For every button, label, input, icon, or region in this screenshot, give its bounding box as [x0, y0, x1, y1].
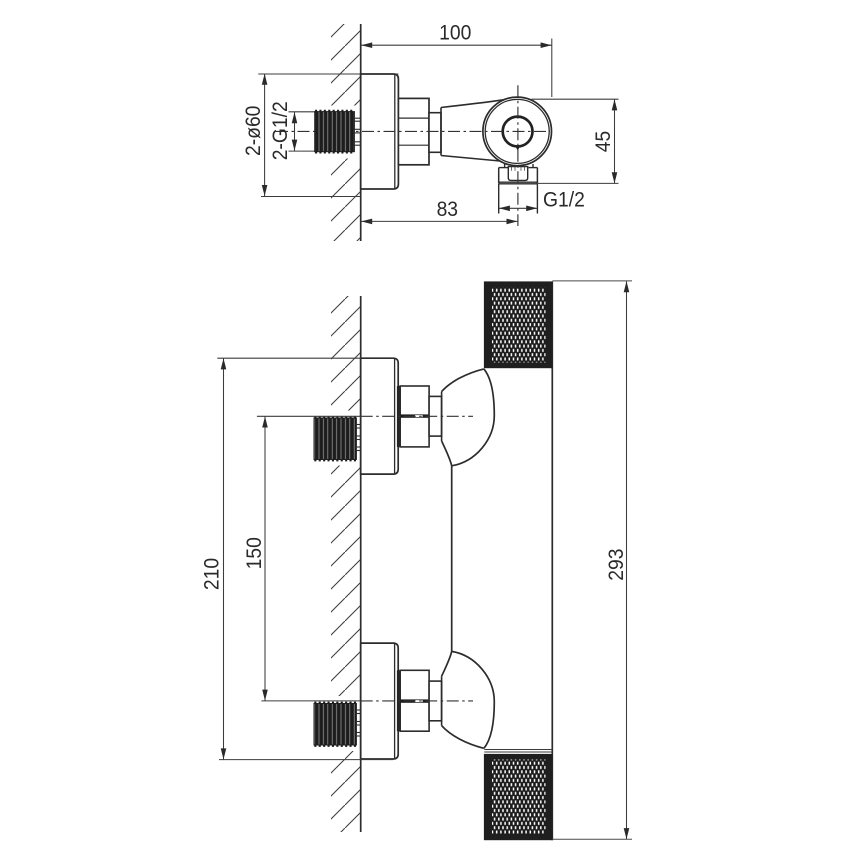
svg-text:293: 293 — [606, 548, 629, 580]
svg-text:45: 45 — [593, 131, 616, 152]
svg-text:83: 83 — [437, 198, 458, 221]
svg-text:2-ø60: 2-ø60 — [243, 106, 266, 156]
svg-text:2-G1/2: 2-G1/2 — [270, 101, 293, 160]
svg-text:210: 210 — [201, 558, 224, 590]
svg-text:G1/2: G1/2 — [543, 189, 585, 212]
svg-text:100: 100 — [439, 22, 471, 45]
svg-text:150: 150 — [243, 537, 266, 569]
